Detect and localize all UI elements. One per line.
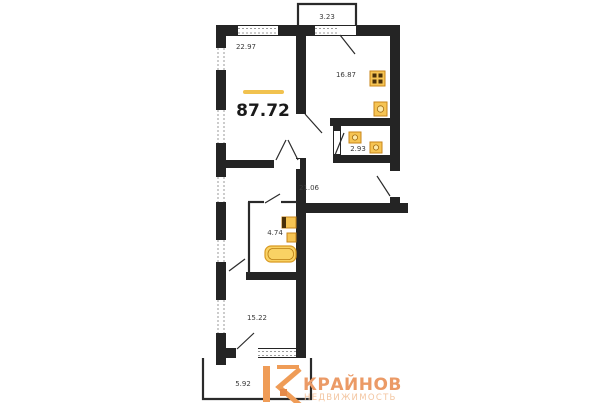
brand-logo: КРАЙНОВ НЕДВИЖИМОСТЬ: [263, 365, 402, 403]
door-icon: [334, 131, 344, 155]
entrance-door-icon: [377, 171, 401, 197]
washbasin-icon: [282, 217, 296, 228]
hallway-area: 21.06: [299, 184, 320, 192]
double-door-icon: [274, 140, 300, 169]
total-area-block: 87.72: [236, 90, 290, 121]
floor-plan-image: 3.23 22.97 16.87 2.93 21.06 4.74 15.22 5…: [0, 0, 605, 403]
accent-line: [243, 90, 284, 94]
floor-plan-svg: 3.23 22.97 16.87 2.93 21.06 4.74 15.22 5…: [0, 0, 605, 403]
logo-brand-name: КРАЙНОВ: [303, 373, 402, 395]
stove-icon: [370, 71, 385, 86]
room-bottom-area: 15.22: [247, 314, 267, 322]
balcony-bottom-area: 5.92: [235, 380, 251, 388]
total-area-value: 87.72: [236, 101, 290, 121]
balcony-top-area: 3.23: [319, 13, 335, 21]
window-icon: [238, 26, 278, 35]
room-top-left-area: 22.97: [236, 43, 256, 51]
bathtub-icon: [265, 246, 296, 262]
door-icon: [305, 114, 322, 133]
kitchen-sink-icon: [374, 102, 387, 116]
bathroom-area: 4.74: [267, 229, 283, 237]
boiler-icon: [370, 142, 382, 153]
kitchen-area: 16.87: [336, 71, 356, 79]
door-icon: [229, 259, 245, 271]
balcony-door-icon: [315, 26, 356, 54]
small-fixture-icon: [287, 233, 296, 242]
logo-brand-subtitle: НЕДВИЖИМОСТЬ: [304, 393, 397, 403]
balcony-door-icon: [236, 333, 296, 359]
toilet-icon: [349, 132, 361, 143]
logo-house-k-icon: [263, 365, 300, 403]
wc-area: 2.93: [350, 145, 366, 153]
